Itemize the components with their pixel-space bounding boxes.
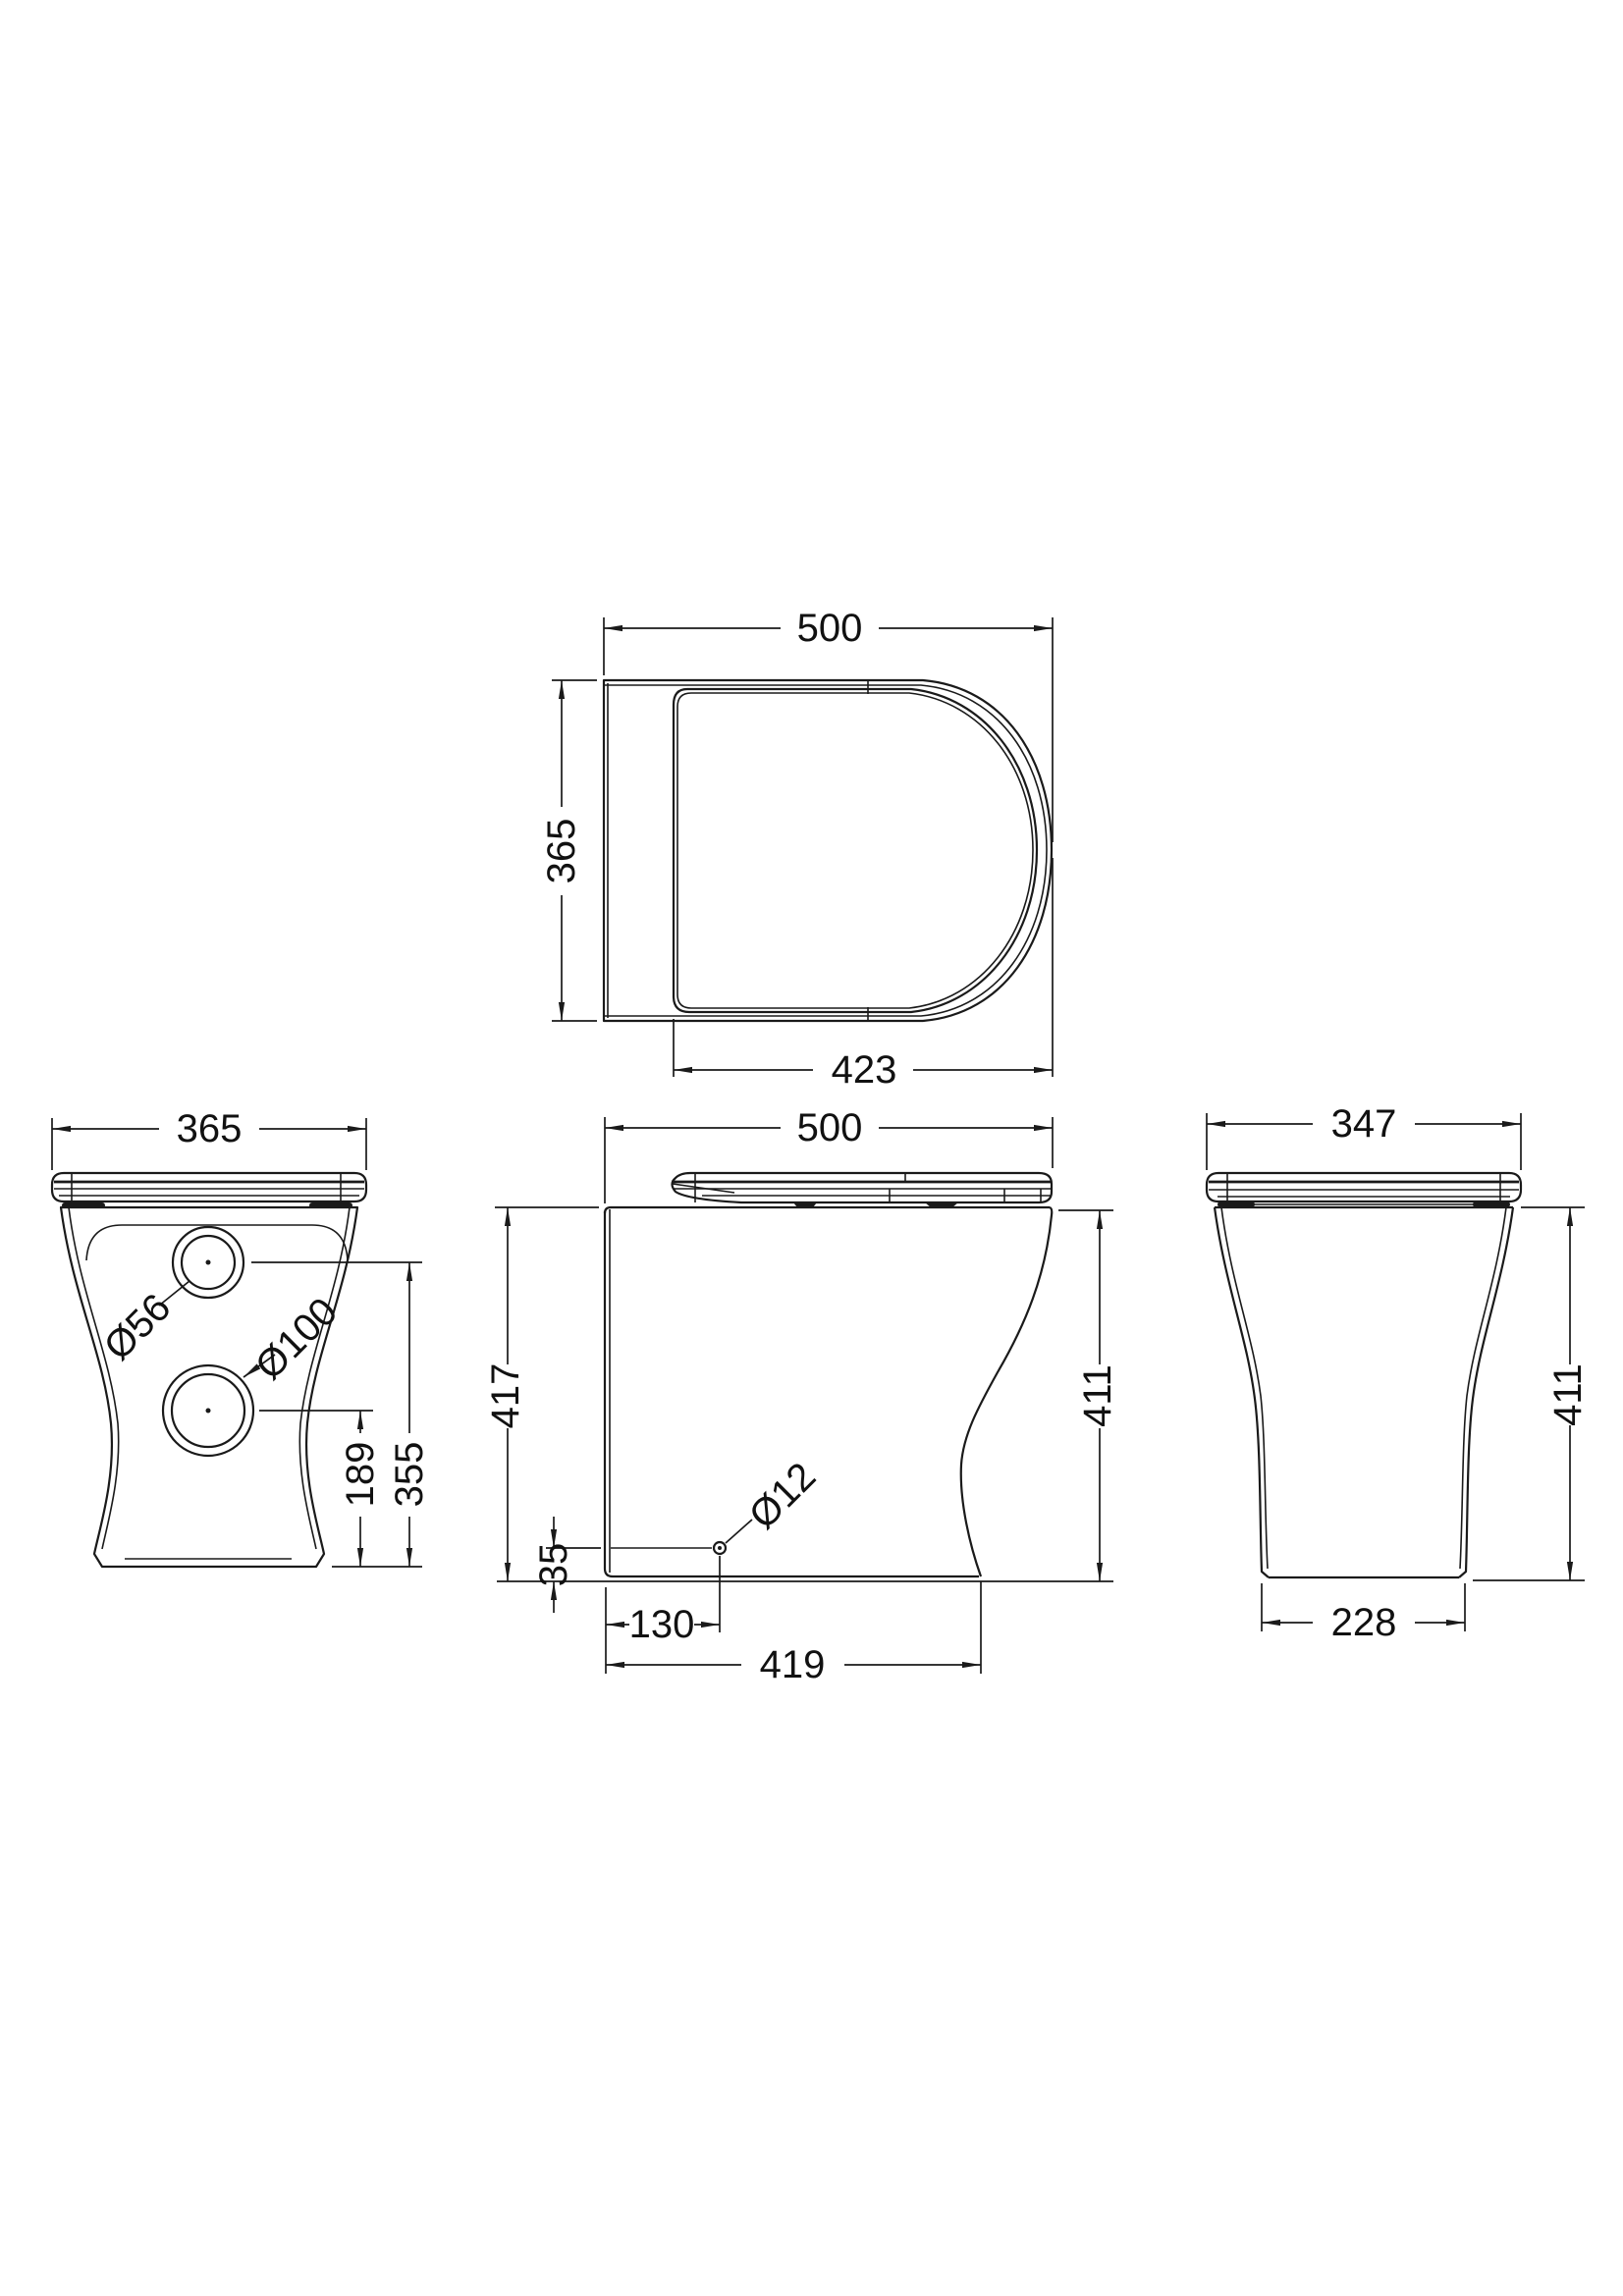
dim-back-hole-upper-height-label: 355 — [388, 1442, 431, 1508]
dim-plan-width-label: 500 — [797, 607, 863, 650]
dim-side-fixing-setout-label: 130 — [629, 1603, 695, 1646]
dim-front-height-rim-label: 411 — [1546, 1363, 1590, 1426]
flush-hole-label: Ø56 — [96, 1286, 180, 1369]
side-body — [605, 1207, 1052, 1576]
waste-hole-callout: Ø100 — [243, 1290, 346, 1388]
fixing-hole-callout: Ø12 — [726, 1455, 824, 1543]
dim-back-hole-lower-height-label: 189 — [339, 1442, 382, 1508]
back-seat-slab — [52, 1173, 366, 1208]
dim-plan-seat-length-label: 423 — [832, 1048, 897, 1092]
back-saddle-contour — [86, 1225, 348, 1260]
dim-back-hole-upper-height: 355 — [251, 1262, 431, 1567]
front-view: 347 411 228 — [1207, 1102, 1590, 1644]
fixing-hole-label: Ø12 — [741, 1455, 825, 1538]
dim-front-base-width: 228 — [1262, 1583, 1465, 1644]
dim-side-fixing-setout: 130 — [606, 1556, 720, 1674]
dim-plan-width: 500 — [604, 607, 1053, 842]
dim-side-fixing-height: 35 — [532, 1517, 601, 1613]
dim-front-width-label: 347 — [1331, 1102, 1397, 1146]
front-body — [1215, 1207, 1513, 1577]
dim-side-height-overall-label: 417 — [484, 1363, 527, 1429]
dim-front-base-width-label: 228 — [1331, 1601, 1397, 1644]
dim-side-base-depth-label: 419 — [760, 1643, 826, 1686]
dim-side-fixing-height-label: 35 — [532, 1543, 575, 1587]
dim-side-width-label: 500 — [797, 1106, 863, 1149]
dim-back-width: 365 — [52, 1107, 366, 1170]
dim-side-height-rim: 411 — [1058, 1210, 1119, 1581]
dim-plan-seat-length: 423 — [674, 858, 1053, 1092]
flush-hole-callout: Ø56 — [96, 1281, 189, 1368]
dim-plan-depth-label: 365 — [540, 819, 583, 884]
front-seat-slab — [1207, 1173, 1521, 1207]
dim-front-height-rim: 411 — [1473, 1207, 1590, 1580]
dim-back-width-label: 365 — [177, 1107, 243, 1150]
waste-hole-label: Ø100 — [247, 1290, 346, 1388]
plan-outline — [604, 679, 1052, 1022]
plan-view: 500 365 423 — [540, 607, 1053, 1092]
back-view: 365 Ø56 Ø100 355 189 — [52, 1107, 431, 1567]
dim-plan-depth: 365 — [540, 680, 597, 1021]
technical-drawing-page: 500 365 423 — [0, 0, 1623, 2296]
dim-side-height-rim-label: 411 — [1076, 1364, 1119, 1427]
side-seat-slab — [672, 1173, 1052, 1207]
side-front-profile — [961, 1207, 1052, 1576]
toilet-dimension-drawing: 500 365 423 — [0, 0, 1623, 2296]
dim-side-height-overall: 417 — [484, 1207, 599, 1581]
dim-front-width: 347 — [1207, 1102, 1521, 1170]
back-body — [61, 1207, 357, 1567]
side-view: 500 417 411 Ø12 35 130 — [484, 1106, 1119, 1686]
